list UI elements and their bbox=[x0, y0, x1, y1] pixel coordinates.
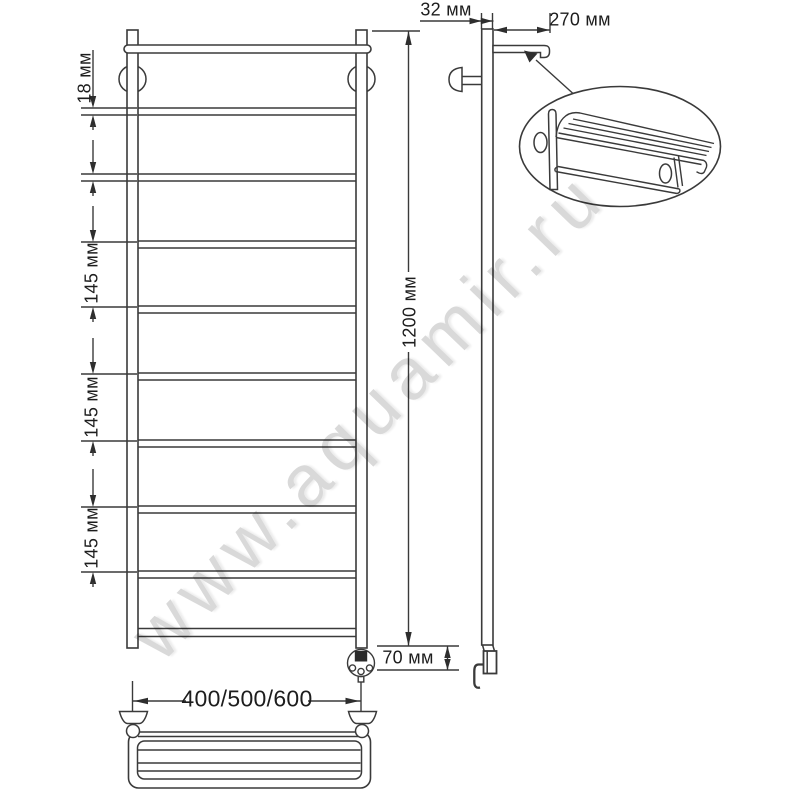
connector-contact bbox=[355, 651, 367, 662]
dim-label-bottom-clearance: 70 мм bbox=[382, 648, 433, 669]
dim-label-pipe-offset: 32 мм bbox=[420, 0, 471, 21]
top-shelf-bar bbox=[124, 45, 371, 53]
dim-label-shelf-depth: 270 мм bbox=[549, 10, 611, 31]
plan-bracket-right bbox=[349, 712, 377, 724]
dim-label-rung-spacing-1: 145 мм bbox=[82, 242, 103, 304]
left-rail bbox=[127, 30, 138, 648]
detail-leader-line bbox=[536, 60, 578, 98]
side-shelf-profile bbox=[493, 46, 550, 58]
dim-label-tube-diameter: 18 мм bbox=[75, 52, 96, 103]
plan-bracket-left bbox=[120, 712, 148, 724]
wall-knob bbox=[449, 68, 462, 92]
plan-post-right bbox=[356, 725, 369, 738]
plan-post-left bbox=[127, 725, 140, 738]
dim-label-rung-spacing-3: 145 мм bbox=[82, 507, 103, 569]
technical-drawing-canvas: 18 мм 145 мм 145 мм 145 мм 1200 мм 32 мм… bbox=[0, 0, 800, 800]
heating-element bbox=[474, 645, 496, 688]
power-cable bbox=[474, 665, 483, 688]
right-rail bbox=[356, 30, 367, 648]
shelf-depth-dimension bbox=[494, 13, 550, 33]
dim-label-rung-spacing-2: 145 мм bbox=[82, 376, 103, 438]
dim-label-width-variants: 400/500/600 bbox=[181, 686, 312, 713]
